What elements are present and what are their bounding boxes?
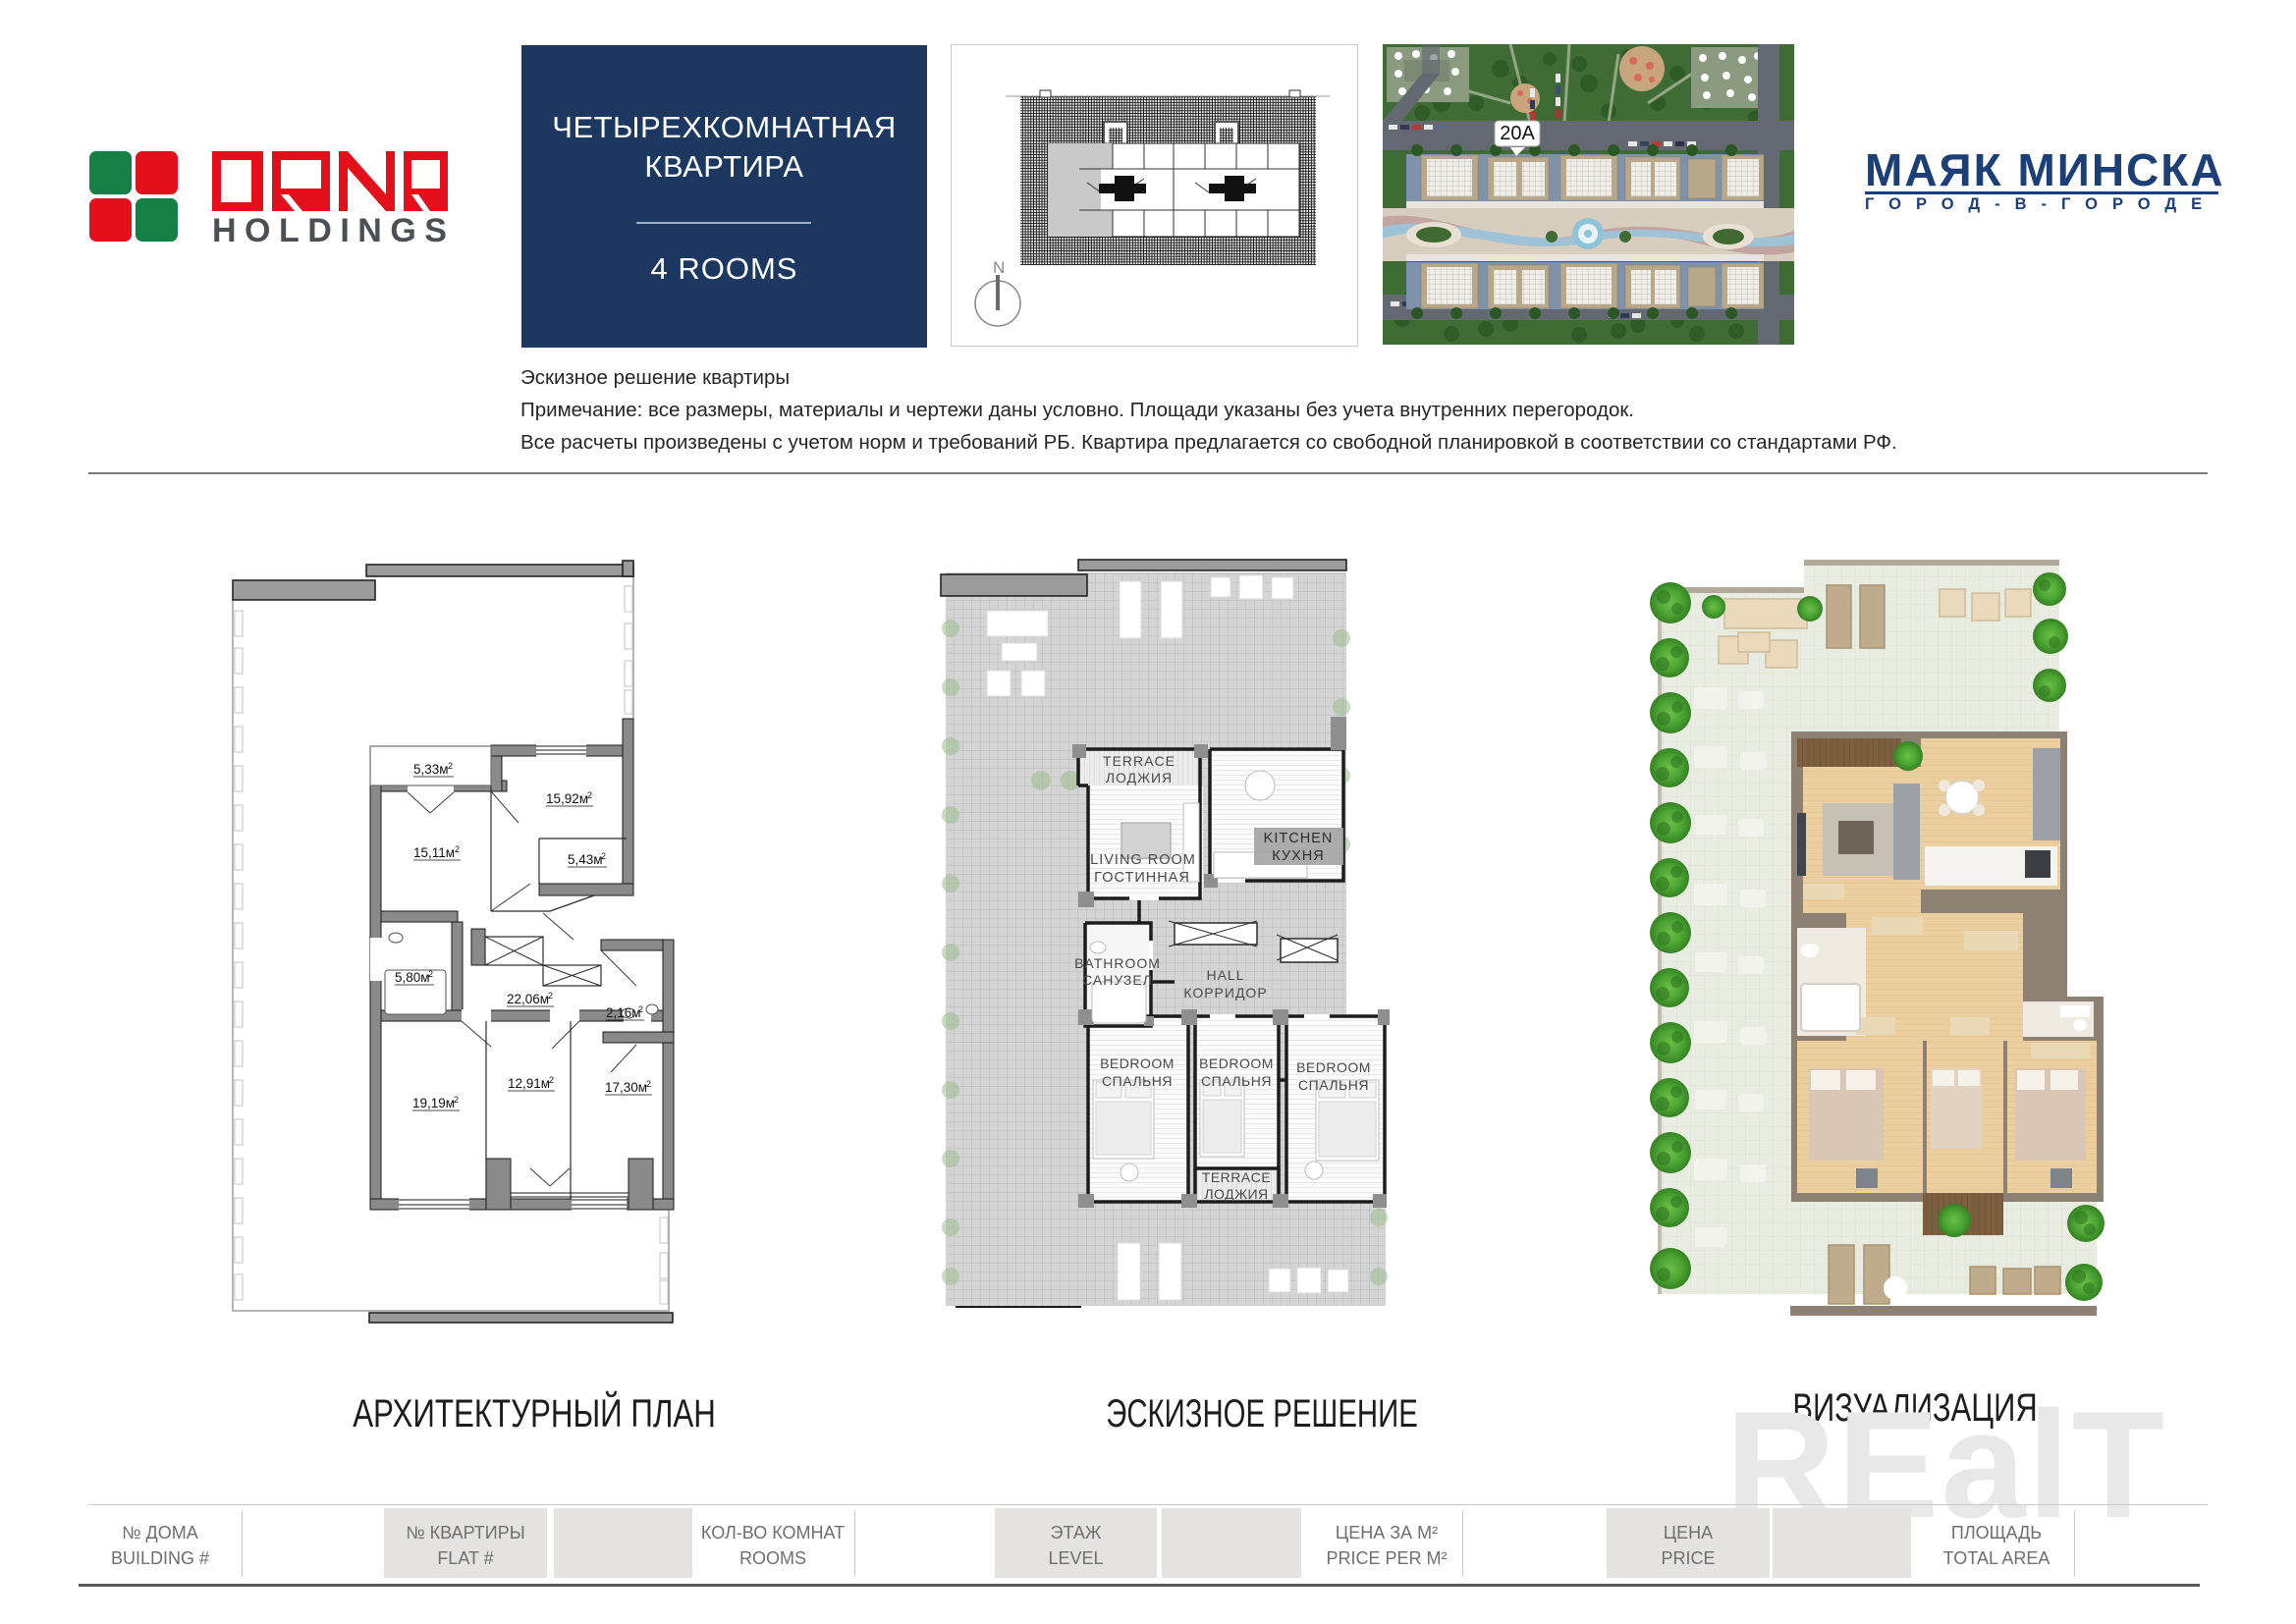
svg-text:BATHROOM: BATHROOM — [1074, 955, 1161, 971]
svg-text:КУХНЯ: КУХНЯ — [1272, 848, 1324, 864]
svg-text:12,91м: 12,91м — [508, 1076, 550, 1091]
svg-text:BEDROOM: BEDROOM — [1100, 1056, 1175, 1071]
svg-text:2,16м: 2,16м — [606, 1005, 641, 1020]
svg-text:15,11м: 15,11м — [413, 845, 455, 860]
svg-text:2: 2 — [448, 761, 453, 771]
svg-text:2: 2 — [587, 790, 592, 800]
svg-text:5,33м: 5,33м — [413, 762, 449, 777]
svg-text:ЛОДЖИЯ: ЛОДЖИЯ — [1204, 1186, 1268, 1202]
svg-text:N: N — [993, 258, 1005, 277]
svg-text:HALL: HALL — [1206, 967, 1244, 983]
svg-text:2: 2 — [455, 844, 460, 854]
svg-text:15,92м: 15,92м — [546, 791, 588, 806]
svg-text:19,19м: 19,19м — [412, 1096, 455, 1110]
svg-text:2: 2 — [601, 851, 606, 861]
svg-text:TERRACE: TERRACE — [1103, 753, 1175, 769]
svg-text:2: 2 — [548, 991, 553, 1001]
svg-text:LIVING ROOM: LIVING ROOM — [1090, 852, 1196, 868]
svg-text:2: 2 — [454, 1095, 459, 1105]
svg-text:5,80м: 5,80м — [395, 970, 430, 985]
svg-text:ЛОДЖИЯ: ЛОДЖИЯ — [1106, 770, 1173, 785]
svg-text:СПАЛЬНЯ: СПАЛЬНЯ — [1102, 1073, 1173, 1089]
svg-text:СПАЛЬНЯ: СПАЛЬНЯ — [1201, 1073, 1272, 1089]
svg-text:САНУЗЕЛ: САНУЗЕЛ — [1082, 972, 1153, 988]
svg-text:TERRACE: TERRACE — [1202, 1169, 1271, 1185]
svg-text:КОРРИДОР: КОРРИДОР — [1183, 985, 1267, 1001]
svg-text:20A: 20A — [1500, 123, 1535, 144]
svg-text:2: 2 — [638, 1004, 643, 1014]
svg-text:2: 2 — [549, 1075, 554, 1085]
svg-text:KITCHEN: KITCHEN — [1264, 831, 1334, 846]
svg-text:СПАЛЬНЯ: СПАЛЬНЯ — [1298, 1077, 1369, 1093]
svg-text:BEDROOM: BEDROOM — [1199, 1056, 1274, 1071]
svg-text:2: 2 — [646, 1079, 651, 1089]
svg-text:5,43м: 5,43м — [568, 852, 603, 867]
svg-text:ГОСТИННАЯ: ГОСТИННАЯ — [1094, 870, 1190, 886]
svg-text:BEDROOM: BEDROOM — [1296, 1059, 1371, 1075]
svg-text:22,06м: 22,06м — [507, 992, 549, 1006]
svg-text:17,30м: 17,30м — [605, 1080, 647, 1095]
svg-text:2: 2 — [428, 969, 433, 979]
